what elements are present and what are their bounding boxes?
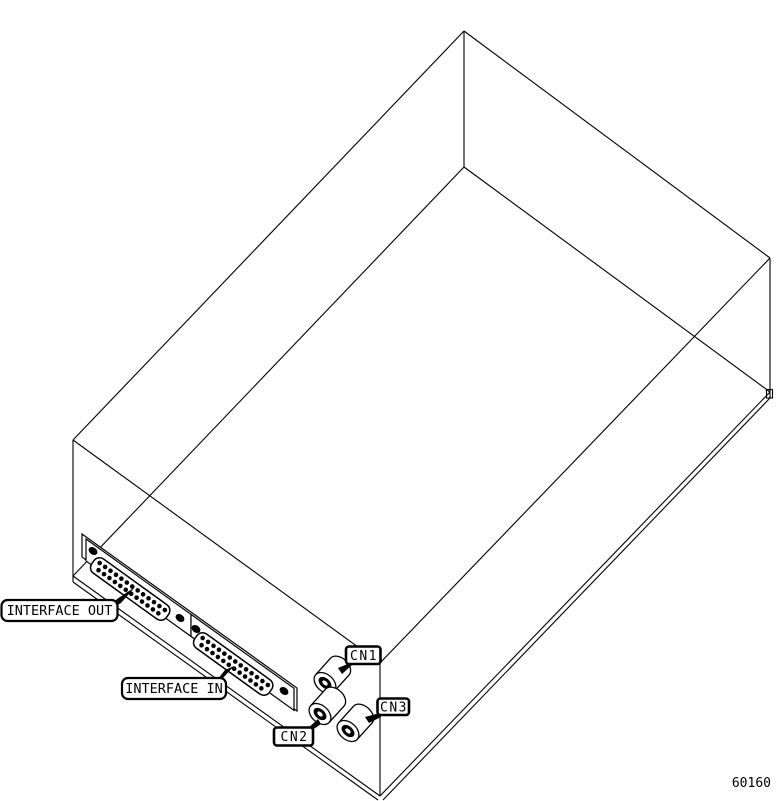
bottom-back-left-edge xyxy=(73,167,464,576)
callout-interface-in: INTERFACE IN xyxy=(122,678,226,699)
callout-cn3: CN3 xyxy=(378,699,410,716)
base-top-right-edge xyxy=(380,392,770,796)
cn1-label: CN1 xyxy=(350,649,378,664)
top-back-right-edge xyxy=(464,31,770,258)
bottom-back-right-edge xyxy=(464,167,770,392)
cn2-label: CN2 xyxy=(281,730,309,745)
callout-cn1: CN1 xyxy=(346,647,381,665)
interface-in-label: INTERFACE IN xyxy=(125,681,223,697)
top-front-left-edge xyxy=(73,440,380,663)
drawing-number: 60160 xyxy=(732,776,771,791)
top-front-right-edge xyxy=(380,258,770,663)
callout-interface-out: INTERFACE OUT xyxy=(2,600,118,621)
callout-cn2: CN2 xyxy=(274,728,313,746)
cn3-label: CN3 xyxy=(380,701,408,716)
top-back-left-edge xyxy=(73,31,464,440)
enclosure-diagram: INTERFACE OUT INTERFACE IN CN1 CN2 CN3 6… xyxy=(0,0,776,801)
figure-canvas: INTERFACE OUT INTERFACE IN CN1 CN2 CN3 6… xyxy=(0,0,776,801)
base-plate xyxy=(73,390,773,801)
interface-out-label: INTERFACE OUT xyxy=(7,603,113,619)
